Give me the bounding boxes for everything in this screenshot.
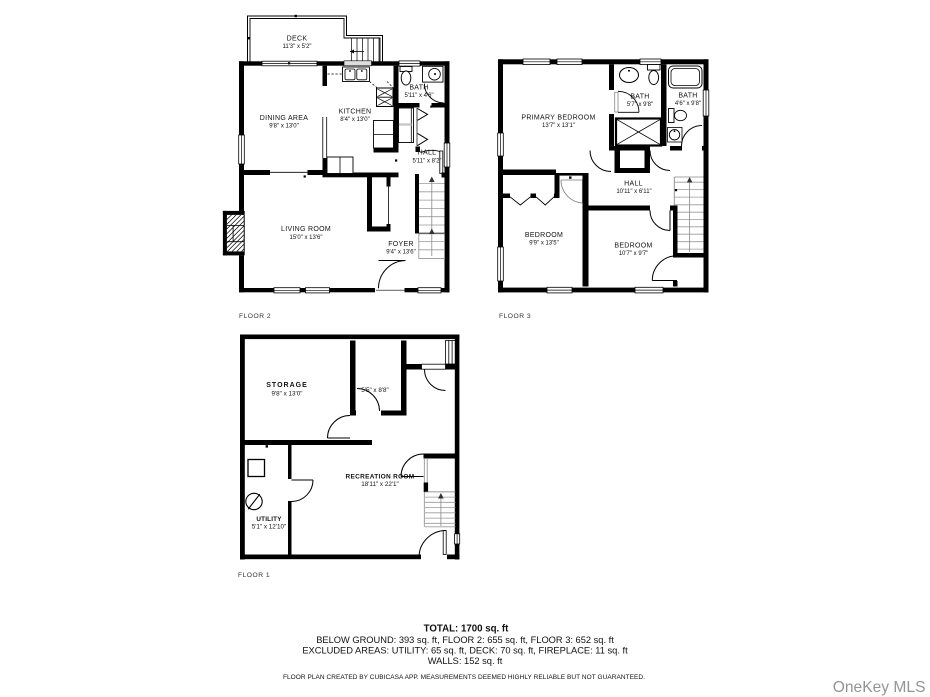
- svg-text:9'9" x 13'5": 9'9" x 13'5": [529, 241, 559, 247]
- svg-text:BATH: BATH: [409, 85, 428, 92]
- svg-text:FLOOR 2: FLOOR 2: [239, 313, 271, 320]
- svg-text:DINING AREA: DINING AREA: [260, 115, 308, 122]
- svg-text:10'7" x 9'7": 10'7" x 9'7": [619, 251, 649, 257]
- svg-text:BEDROOM: BEDROOM: [614, 243, 652, 250]
- svg-text:18'11" x 22'1": 18'11" x 22'1": [361, 481, 399, 488]
- svg-text:FLOOR PLAN CREATED BY CUBICASA: FLOOR PLAN CREATED BY CUBICASA APP. MEAS…: [283, 674, 645, 681]
- svg-text:RECREATION ROOM: RECREATION ROOM: [345, 474, 414, 481]
- svg-text:8'4" x 13'0": 8'4" x 13'0": [340, 117, 370, 123]
- svg-text:FLOOR 3: FLOOR 3: [499, 313, 531, 320]
- svg-text:15'0" x 13'6": 15'0" x 13'6": [290, 235, 323, 241]
- svg-text:HALL: HALL: [624, 181, 643, 188]
- svg-text:BATH: BATH: [630, 94, 649, 101]
- svg-text:PRIMARY BEDROOM: PRIMARY BEDROOM: [521, 115, 595, 122]
- svg-text:5'11" x 8'2": 5'11" x 8'2": [412, 159, 441, 165]
- svg-text:BELOW GROUND: 393 sq. ft, FLOO: BELOW GROUND: 393 sq. ft, FLOOR 2: 655 s…: [316, 635, 614, 645]
- svg-text:KITCHEN: KITCHEN: [339, 109, 372, 116]
- svg-text:5'11" x 4'6": 5'11" x 4'6": [404, 93, 433, 99]
- svg-text:LIVING ROOM: LIVING ROOM: [281, 226, 331, 233]
- svg-text:10'11" x 6'11": 10'11" x 6'11": [616, 189, 651, 195]
- svg-text:9'4" x 13'6": 9'4" x 13'6": [386, 250, 416, 256]
- svg-text:EXCLUDED AREAS: UTILITY: 65 sq: EXCLUDED AREAS: UTILITY: 65 sq. ft, DECK…: [302, 646, 628, 656]
- svg-text:WALLS: 152 sq. ft: WALLS: 152 sq. ft: [428, 656, 503, 666]
- svg-text:STORAGE: STORAGE: [266, 382, 308, 389]
- svg-text:5'5" x 8'8": 5'5" x 8'8": [361, 387, 389, 394]
- svg-text:FOYER: FOYER: [388, 241, 414, 248]
- svg-text:BEDROOM: BEDROOM: [525, 232, 563, 239]
- svg-text:UTILITY: UTILITY: [256, 516, 282, 523]
- svg-text:13'7" x 13'1": 13'7" x 13'1": [542, 123, 575, 129]
- svg-text:DECK: DECK: [287, 36, 308, 43]
- svg-text:BATH: BATH: [678, 93, 697, 100]
- svg-text:5'1" x 12'10": 5'1" x 12'10": [252, 524, 287, 531]
- svg-text:4'6" x 9'8": 4'6" x 9'8": [675, 101, 701, 107]
- svg-text:FLOOR 1: FLOOR 1: [238, 572, 270, 579]
- svg-text:HALL: HALL: [418, 150, 437, 157]
- svg-text:9'8" x 13'0": 9'8" x 13'0": [271, 391, 302, 398]
- svg-text:11'3" x 5'2": 11'3" x 5'2": [282, 44, 311, 50]
- svg-text:5'7" x 9'8": 5'7" x 9'8": [627, 102, 653, 108]
- svg-text:TOTAL: 1700 sq. ft: TOTAL: 1700 sq. ft: [424, 624, 509, 635]
- svg-text:9'8" x 13'0": 9'8" x 13'0": [269, 124, 299, 130]
- svg-text:OneKey MLS: OneKey MLS: [833, 679, 926, 696]
